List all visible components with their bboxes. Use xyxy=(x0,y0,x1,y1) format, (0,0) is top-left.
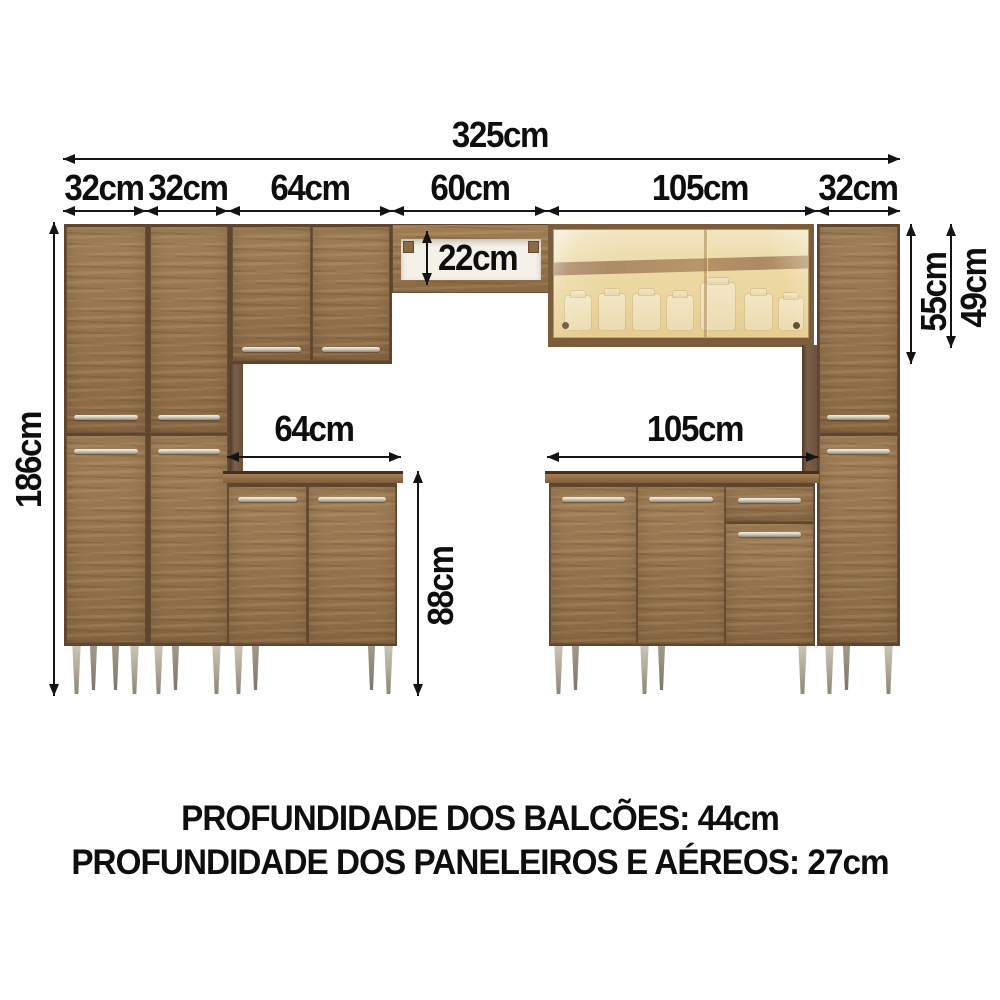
cabinet-leg xyxy=(152,646,165,694)
upper-cabinet-64 xyxy=(230,224,392,364)
cabinet-leg xyxy=(882,646,895,694)
kitchen-cabinet-dimension-diagram: 325cm 32cm 32cm 64cm 60cm 105cm 32cm 186… xyxy=(0,0,1000,1000)
tall-cabinet-left-2 xyxy=(148,224,230,646)
base-counter-64 xyxy=(223,471,403,646)
dim-label-seg-60: 60cm xyxy=(430,167,509,209)
glass-door-knob xyxy=(562,322,569,329)
cabinet-door xyxy=(66,226,146,433)
depth-note-counters: PROFUNDIDADE DOS BALCÕES: 44cm xyxy=(181,799,779,839)
cabinet-door xyxy=(725,523,814,644)
cabinet-leg xyxy=(210,646,223,694)
door-handle xyxy=(238,497,297,502)
dim-label-upper-55: 55cm xyxy=(913,252,955,331)
tall-cabinet-right xyxy=(817,224,900,646)
cabinet-leg xyxy=(656,646,667,690)
interior-shadow-band xyxy=(553,255,809,275)
cabinet-door xyxy=(312,226,390,361)
dim-label-seg-105: 105cm xyxy=(652,167,748,209)
dim-arrow-niche-height xyxy=(426,231,428,285)
dim-arrow-seg-32c xyxy=(817,210,900,212)
cabinet-leg xyxy=(382,646,395,694)
dim-arrow-upper-55 xyxy=(910,224,912,364)
niche-peg xyxy=(403,241,414,253)
glass-door-divider xyxy=(704,230,707,337)
cabinet-leg xyxy=(170,646,181,690)
countertop xyxy=(545,471,819,483)
depth-note-pantries: PROFUNDIDADE DOS PANELEIROS E AÉREOS: 27… xyxy=(71,843,888,883)
counter-body xyxy=(227,483,397,646)
drawer-door-stack xyxy=(725,486,814,644)
dim-label-counter-height: 88cm xyxy=(420,546,462,625)
cabinet-leg xyxy=(841,646,852,690)
jar xyxy=(632,293,661,331)
dim-label-total-height: 186cm xyxy=(8,412,50,508)
cabinet-door xyxy=(228,486,307,644)
cabinet-door xyxy=(150,435,228,643)
glass-door-knob xyxy=(793,322,800,329)
cabinet-door xyxy=(150,226,228,433)
dim-label-counter-left: 64cm xyxy=(274,408,353,450)
cabinet-door xyxy=(232,226,311,361)
jar xyxy=(666,295,694,331)
door-handle xyxy=(158,449,220,454)
door-handle xyxy=(318,497,386,502)
niche-peg xyxy=(528,241,539,253)
dim-arrow-seg-32a xyxy=(63,210,146,212)
cabinet-leg xyxy=(110,646,121,690)
dim-label-seg-32c: 32cm xyxy=(818,167,897,209)
dim-label-seg-64: 64cm xyxy=(270,167,349,209)
cabinet-door xyxy=(819,435,898,643)
dim-label-seg-32a: 32cm xyxy=(64,167,143,209)
dim-label-seg-32b: 32cm xyxy=(148,167,227,209)
cabinet-door xyxy=(819,226,898,433)
jar xyxy=(744,293,773,331)
jar xyxy=(778,297,804,331)
dim-label-counter-right: 105cm xyxy=(647,408,743,450)
dim-arrow-seg-64 xyxy=(228,210,392,212)
dim-label-aerial-49: 49cm xyxy=(953,248,995,327)
dim-arrow-seg-32b xyxy=(146,210,228,212)
cabinet-leg xyxy=(128,646,141,694)
door-handle xyxy=(242,347,301,352)
dim-arrow-aerial-49 xyxy=(950,224,952,348)
door-handle xyxy=(827,449,890,454)
cabinet-leg xyxy=(570,646,581,690)
drawer-handle xyxy=(738,498,801,503)
tall-cabinet-left-1 xyxy=(64,224,148,646)
dim-label-niche-height: 22cm xyxy=(438,237,517,279)
door-handle xyxy=(74,415,138,420)
cabinet-door xyxy=(637,486,725,644)
cabinet-door xyxy=(308,486,396,644)
jar xyxy=(598,293,626,331)
cabinet-door xyxy=(66,435,146,643)
counter-body xyxy=(549,483,815,646)
countertop xyxy=(223,471,403,483)
cabinet-leg xyxy=(552,646,565,694)
door-handle xyxy=(562,497,625,502)
cabinet-leg xyxy=(796,646,809,694)
cabinet-leg xyxy=(823,646,836,694)
door-handle xyxy=(74,449,138,454)
glass-doors xyxy=(553,229,809,338)
dim-label-total-width: 325cm xyxy=(452,114,548,156)
cabinet-leg xyxy=(70,646,83,694)
door-handle xyxy=(738,532,801,537)
cabinet-leg xyxy=(366,646,377,690)
cabinet-leg xyxy=(232,646,245,694)
dim-arrow-total-width xyxy=(63,158,900,160)
door-handle xyxy=(827,415,890,420)
cabinet-door xyxy=(550,486,637,644)
door-handle xyxy=(649,497,713,502)
drawer xyxy=(725,486,814,522)
door-handle xyxy=(158,415,220,420)
dim-arrow-total-height xyxy=(53,222,55,696)
door-handle xyxy=(322,347,380,352)
base-counter-105 xyxy=(545,471,819,646)
dim-arrow-counter-height xyxy=(417,471,419,696)
dim-arrow-seg-105 xyxy=(547,210,817,212)
cabinet-leg xyxy=(638,646,651,694)
dim-arrow-seg-60 xyxy=(392,210,547,212)
dim-arrow-counter-right xyxy=(547,456,818,458)
aerial-glass-cabinet xyxy=(548,224,814,347)
cabinet-leg xyxy=(88,646,99,690)
dim-arrow-counter-left xyxy=(227,456,401,458)
cabinet-leg xyxy=(250,646,261,690)
